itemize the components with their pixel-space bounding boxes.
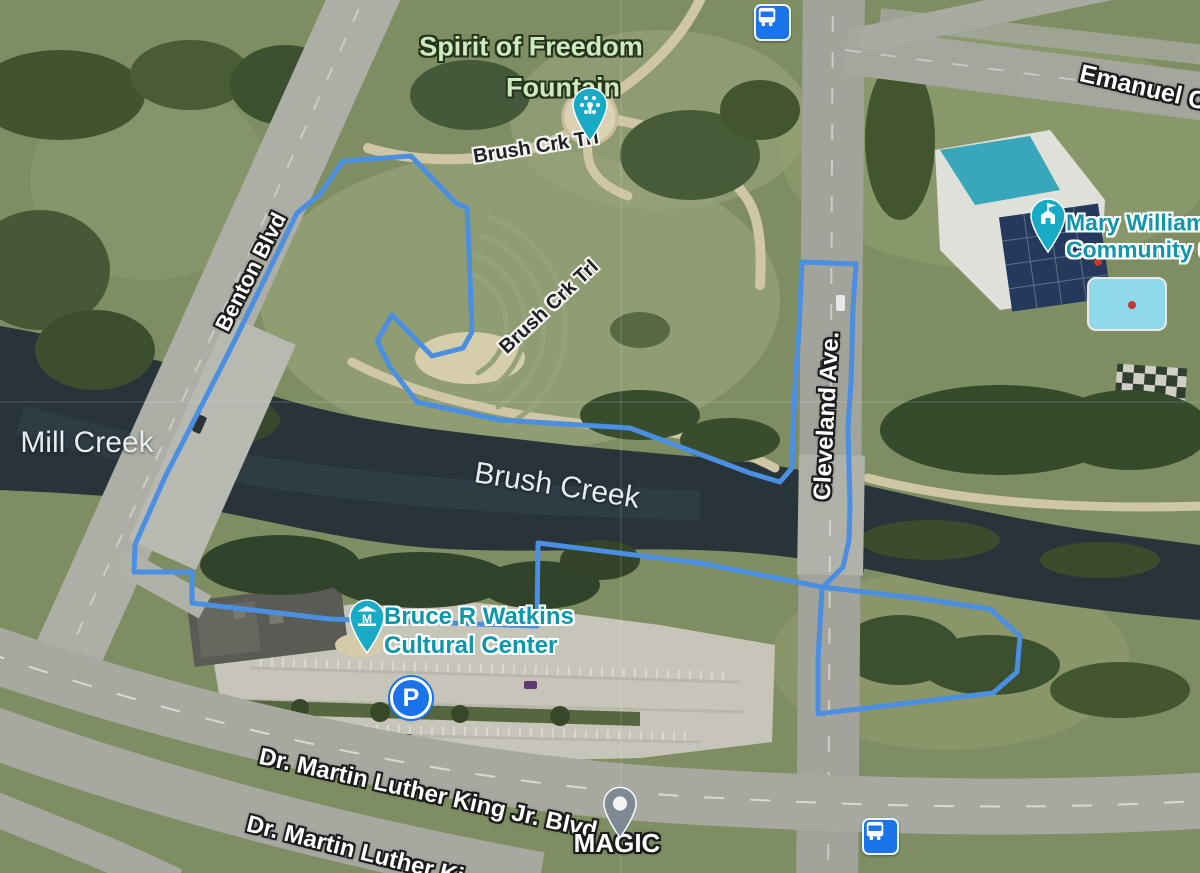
museum-pin-icon[interactable]: M: [348, 599, 386, 655]
bus-glyph: [756, 6, 778, 28]
parking-icon[interactable]: P: [390, 677, 432, 719]
bus-stop-icon-top[interactable]: [754, 4, 791, 41]
museum-letter: M: [362, 612, 372, 626]
parking-letter: P: [403, 684, 420, 713]
bus-glyph: [864, 820, 886, 842]
map-canvas[interactable]: Spirit of Freedom Fountain Brush Crk Trl…: [0, 0, 1200, 873]
community-center-pin-icon[interactable]: [1029, 198, 1067, 254]
bus-stop-icon-bottom[interactable]: [862, 818, 899, 855]
fountain-pin-icon[interactable]: [571, 87, 609, 143]
magic-pin-icon[interactable]: [602, 786, 640, 842]
